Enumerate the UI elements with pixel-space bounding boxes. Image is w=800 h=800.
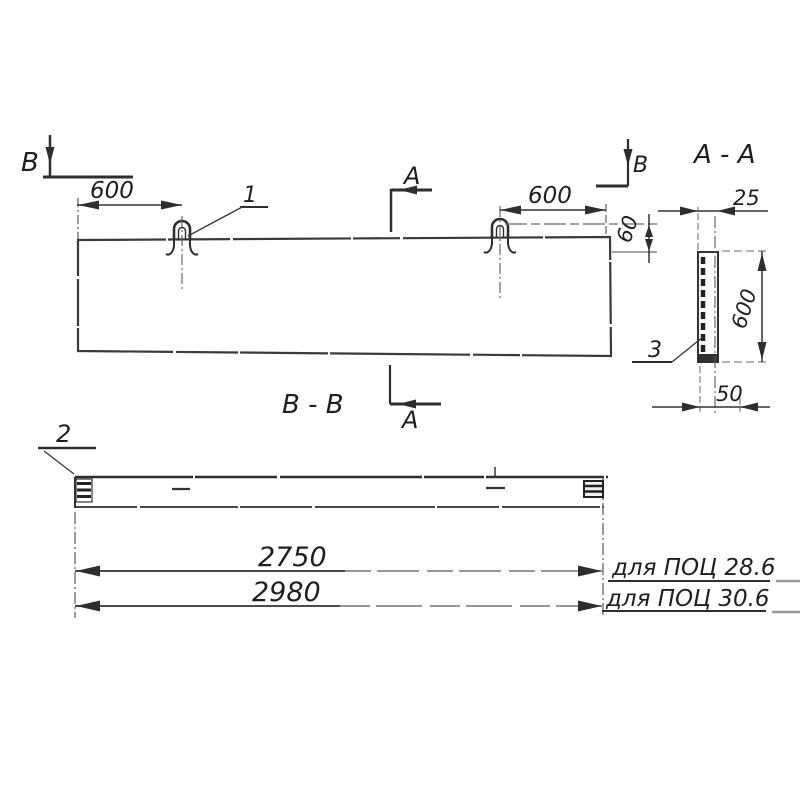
dim-50-text: 50 (716, 382, 743, 406)
note-variant-1-text: для ПОЦ 28.6 (611, 555, 776, 581)
arrow-down-icon (624, 149, 633, 166)
arrow-right-icon (161, 201, 182, 210)
dim-25-text: 25 (733, 186, 760, 210)
arrow-down-icon (758, 342, 767, 360)
dim-25: 25 (658, 186, 768, 250)
arrow-left-icon (500, 206, 521, 215)
note-variant-2: для ПОЦ 30.6 (602, 586, 800, 612)
dim-length-2-text: 2980 (252, 577, 321, 608)
cut-mark-a-bottom: А (390, 365, 441, 434)
cut-mark-b-right: В (596, 139, 648, 186)
dim-600-left-text: 600 (90, 178, 134, 204)
arrow-right-icon (682, 403, 700, 412)
leader-line (44, 451, 74, 474)
cut-label-b-left: В (21, 148, 39, 178)
arrow-left-icon (76, 566, 100, 577)
section-aa-title: А - А (692, 140, 755, 170)
cut-label-a-bottom: А (400, 406, 418, 434)
dim-600-vertical: 600 (722, 251, 768, 362)
arrow-down-icon (645, 239, 653, 251)
arrow-down-icon (46, 147, 55, 164)
section-aa-view (698, 216, 718, 416)
end-block-right (584, 481, 603, 497)
drawing-canvas: В 600 1 (0, 0, 800, 800)
item-label-1: 1 (188, 183, 268, 236)
plan-view-bb (75, 467, 608, 508)
cut-mark-b-left: В (21, 135, 133, 178)
block-outline (584, 481, 603, 497)
dim-600-vertical-text: 600 (727, 286, 762, 331)
cut-label-b-right: В (633, 153, 648, 178)
dim-600-right-text: 600 (528, 183, 572, 209)
loop-hook-left (484, 238, 492, 253)
dim-length-1-text: 2750 (258, 542, 327, 573)
note-variant-2-text: для ПОЦ 30.6 (605, 586, 770, 612)
leader-line (188, 206, 244, 236)
cut-mark-a-top: А (391, 162, 432, 232)
arrow-up-icon (758, 253, 767, 271)
item-2-text: 2 (56, 420, 71, 448)
dim-length-variant-1: 2750 (75, 503, 603, 618)
arrow-right-icon (578, 566, 602, 577)
cut-label-a-top: А (402, 162, 420, 190)
dim-600-right: 600 (500, 183, 606, 238)
item-3-text: 3 (648, 338, 662, 363)
elevation-view (78, 206, 611, 356)
arrow-right-icon (585, 206, 606, 215)
dim-50: 50 (652, 366, 770, 412)
dim-length-variant-2: 2980 (75, 577, 603, 612)
item-1-text: 1 (243, 183, 257, 208)
dim-60-text: 60 (612, 213, 643, 246)
loop-hook-right (508, 238, 516, 253)
end-anchor-left (76, 479, 92, 502)
panel-outline (78, 237, 611, 356)
item-label-3: 3 (632, 337, 703, 363)
loop-hook-right (190, 240, 198, 255)
lifting-loop-1 (166, 216, 198, 290)
dim-600-left: 600 (77, 178, 182, 241)
lifting-loop-2 (484, 206, 516, 298)
arrow-right-icon (680, 207, 698, 216)
item-label-2: 2 (38, 420, 96, 474)
section-bb-title: В - В (282, 390, 344, 420)
loop-hook-left (166, 240, 174, 255)
note-variant-1: для ПОЦ 28.6 (608, 555, 800, 581)
technical-drawing-svg: В 600 1 (0, 0, 800, 800)
arrow-left-icon (76, 601, 100, 612)
arrow-up-icon (645, 225, 653, 237)
arrow-right-icon (578, 601, 602, 612)
